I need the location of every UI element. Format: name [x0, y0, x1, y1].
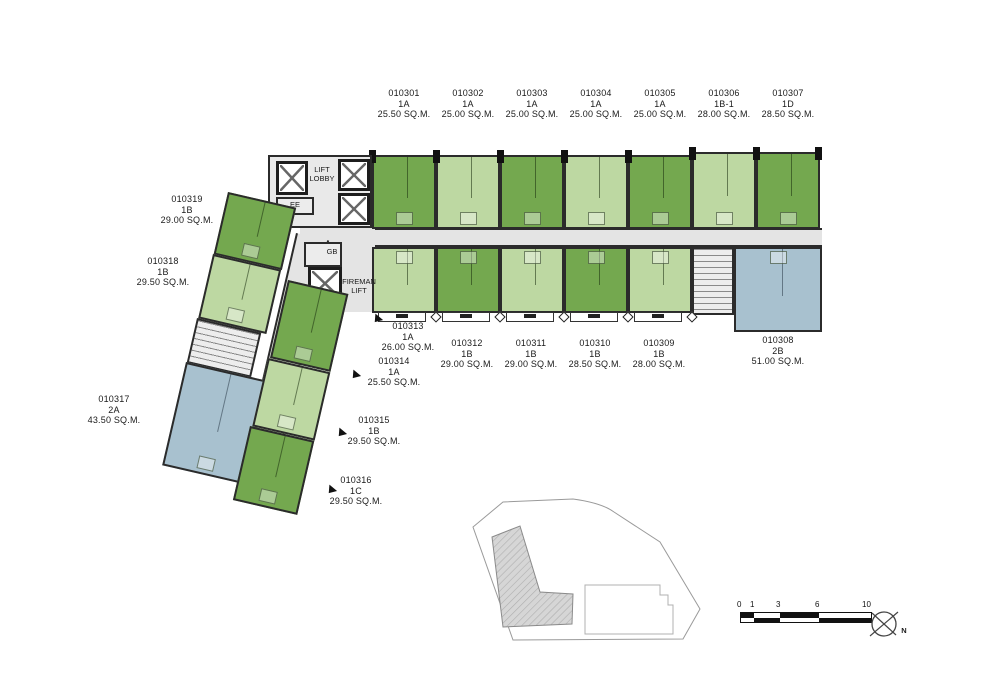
scale-tick-0: 0: [737, 600, 741, 609]
compass-north-label: N: [899, 627, 909, 636]
column: [561, 150, 568, 163]
unit-010309[interactable]: [628, 247, 692, 313]
unit-010310[interactable]: [564, 247, 628, 313]
unit-label-010302: 0103021A25.00 SQ.M.: [433, 88, 503, 120]
unit-010303[interactable]: [500, 155, 564, 229]
unit-010305[interactable]: [628, 155, 692, 229]
column: [815, 147, 822, 160]
balcony: [634, 312, 682, 322]
scale-tick-1: 1: [750, 600, 754, 609]
floor-plan-canvas: EE LIFT LOBBY GB FIREMAN LIFT 0103011A25…: [0, 0, 1000, 700]
unit-label-010313: 0103131A26.00 SQ.M.: [373, 321, 443, 353]
ac-marker: [558, 311, 569, 322]
site-building-highlight: [492, 526, 573, 627]
unit-label-010309: 0103091B28.00 SQ.M.: [624, 338, 694, 370]
unit-label-010311: 0103111B29.00 SQ.M.: [496, 338, 566, 370]
unit-label-010305: 0103051A25.00 SQ.M.: [625, 88, 695, 120]
lift-shaft: [338, 193, 370, 225]
scale-tick-3: 3: [776, 600, 780, 609]
column: [625, 150, 632, 163]
column: [689, 147, 696, 160]
unit-010307[interactable]: [756, 152, 820, 229]
unit-label-010301: 0103011A25.50 SQ.M.: [369, 88, 439, 120]
unit-label-010317: 0103172A43.50 SQ.M.: [79, 394, 149, 426]
unit-010306[interactable]: [692, 152, 756, 229]
unit-label-010307: 0103071D28.50 SQ.M.: [753, 88, 823, 120]
column: [433, 150, 440, 163]
unit-label-010319: 0103191B29.00 SQ.M.: [152, 194, 222, 226]
unit-010315[interactable]: [252, 358, 330, 441]
unit-010311[interactable]: [500, 247, 564, 313]
site-building-other: [585, 585, 673, 634]
lift-lobby-label: LIFT LOBBY: [300, 166, 344, 183]
unit-label-010306: 0103061B-128.00 SQ.M.: [689, 88, 759, 120]
ac-marker: [494, 311, 505, 322]
staircase-east: [692, 247, 734, 315]
site-key-plan: [460, 496, 710, 646]
unit-010302[interactable]: [436, 155, 500, 229]
scale-bar: [740, 612, 872, 623]
column: [753, 147, 760, 160]
main-corridor: [330, 228, 822, 247]
gb-room-label: GB: [324, 248, 340, 257]
unit-label-010314: 0103141A25.50 SQ.M.: [359, 356, 429, 388]
unit-label-010303: 0103031A25.00 SQ.M.: [497, 88, 567, 120]
ac-marker: [622, 311, 633, 322]
unit-label-010308: 0103082B51.00 SQ.M.: [743, 335, 813, 367]
unit-010301[interactable]: [372, 155, 436, 229]
unit-label-010316: 0103161C29.50 SQ.M.: [321, 475, 391, 507]
balcony: [506, 312, 554, 322]
scale-tick-6: 6: [815, 600, 819, 609]
unit-label-010310: 0103101B28.50 SQ.M.: [560, 338, 630, 370]
unit-010304[interactable]: [564, 155, 628, 229]
unit-010308[interactable]: [734, 247, 822, 332]
column: [497, 150, 504, 163]
unit-label-010304: 0103041A25.00 SQ.M.: [561, 88, 631, 120]
unit-label-010315: 0103151B29.50 SQ.M.: [339, 415, 409, 447]
balcony: [570, 312, 618, 322]
unit-010312[interactable]: [436, 247, 500, 313]
unit-label-010318: 0103181B29.50 SQ.M.: [128, 256, 198, 288]
balcony: [442, 312, 490, 322]
